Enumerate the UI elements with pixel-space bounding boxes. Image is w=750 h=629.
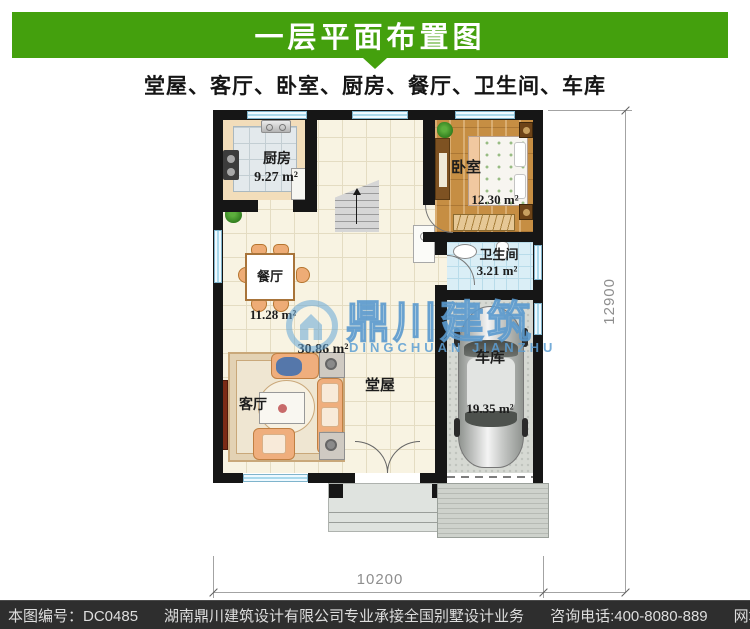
page: 一层平面布置图 堂屋、客厅、卧室、厨房、餐厅、卫生间、车库 bbox=[0, 0, 750, 629]
header-pointer-triangle bbox=[363, 58, 387, 69]
person-figure bbox=[276, 357, 302, 376]
dining-area: 11.28 m² bbox=[233, 308, 313, 322]
plant-icon bbox=[437, 122, 453, 138]
stove bbox=[223, 150, 239, 180]
wall-segment bbox=[293, 200, 317, 212]
entry-porch-steps bbox=[328, 483, 447, 532]
bathroom-window bbox=[534, 245, 542, 280]
wall-segment bbox=[213, 110, 223, 483]
room-list-subtitle: 堂屋、客厅、卧室、厨房、餐厅、卫生间、车库 bbox=[0, 70, 750, 100]
page-title: 一层平面布置图 bbox=[254, 14, 485, 56]
wall-segment bbox=[435, 285, 447, 483]
kitchen-sink bbox=[261, 120, 291, 133]
wall-segment bbox=[533, 110, 543, 483]
armchair bbox=[253, 428, 295, 460]
bedroom-window bbox=[455, 111, 515, 119]
car-wheel bbox=[522, 418, 528, 437]
company-slogan: 湖南鼎川建筑设计有限公司专业承接全国别墅设计业务 bbox=[164, 605, 524, 626]
garage-area: 19.35 m² bbox=[453, 402, 527, 416]
wall-segment bbox=[423, 232, 543, 242]
dimension-extension bbox=[548, 110, 632, 111]
floor-plan: 厨房 9.27 m² 卧室 12.30 m² 卫生间 3.21 m² bbox=[213, 110, 543, 483]
wall-segment bbox=[305, 120, 317, 212]
drawing-number: 本图编号：DC0485 bbox=[8, 605, 138, 626]
wall-segment bbox=[423, 120, 435, 205]
hall-cabinet bbox=[413, 225, 435, 263]
stairs-direction-arrow bbox=[356, 190, 357, 224]
garage-window bbox=[534, 303, 542, 335]
car bbox=[456, 306, 526, 468]
nightstand bbox=[519, 122, 533, 138]
kitchen-area: 9.27 m² bbox=[243, 170, 309, 185]
wall-segment bbox=[435, 242, 447, 255]
height-dimension-value: 12900 bbox=[601, 278, 618, 325]
dimension-line-vertical bbox=[625, 110, 626, 592]
wall-segment bbox=[223, 200, 258, 212]
car-wheel bbox=[454, 418, 460, 437]
bathroom-area: 3.21 m² bbox=[465, 264, 529, 278]
hall-window bbox=[352, 111, 408, 119]
garage-ramp bbox=[437, 483, 549, 538]
hall-area: 30.86 m² bbox=[273, 342, 373, 357]
living-label: 客厅 bbox=[231, 398, 275, 413]
living-window bbox=[243, 474, 308, 482]
car-wheel bbox=[522, 328, 528, 347]
bedroom-area: 12.30 m² bbox=[463, 193, 527, 207]
bathroom-label: 卫生间 bbox=[465, 248, 533, 262]
wall-segment bbox=[447, 290, 533, 300]
phone-number: 咨询电话:400-8080-889 bbox=[550, 605, 708, 626]
wardrobe bbox=[453, 214, 515, 231]
kitchen-label: 厨房 bbox=[249, 152, 305, 167]
garage-label: 车库 bbox=[453, 350, 527, 367]
wall-segment bbox=[213, 473, 243, 483]
bedroom-label: 卧室 bbox=[441, 160, 491, 177]
website-link[interactable]: 网址：www.bstzcs.com bbox=[734, 605, 750, 626]
dimension-line-horizontal bbox=[213, 592, 625, 593]
side-table bbox=[319, 432, 345, 460]
garage-door-dashed-line bbox=[447, 476, 533, 478]
kitchen-window bbox=[247, 111, 307, 119]
dining-label: 餐厅 bbox=[257, 270, 283, 284]
footer-bar: 本图编号：DC0485 湖南鼎川建筑设计有限公司专业承接全国别墅设计业务 咨询电… bbox=[0, 600, 750, 629]
hall-label: 堂屋 bbox=[350, 378, 410, 395]
car-wheel bbox=[454, 328, 460, 347]
dining-window bbox=[214, 230, 222, 283]
wall-segment bbox=[308, 473, 355, 483]
dining-table: 餐厅 bbox=[245, 253, 295, 301]
stairs-arrow-head-icon bbox=[353, 188, 361, 195]
width-dimension-value: 10200 bbox=[330, 571, 430, 588]
header-bar: 一层平面布置图 bbox=[12, 12, 728, 58]
